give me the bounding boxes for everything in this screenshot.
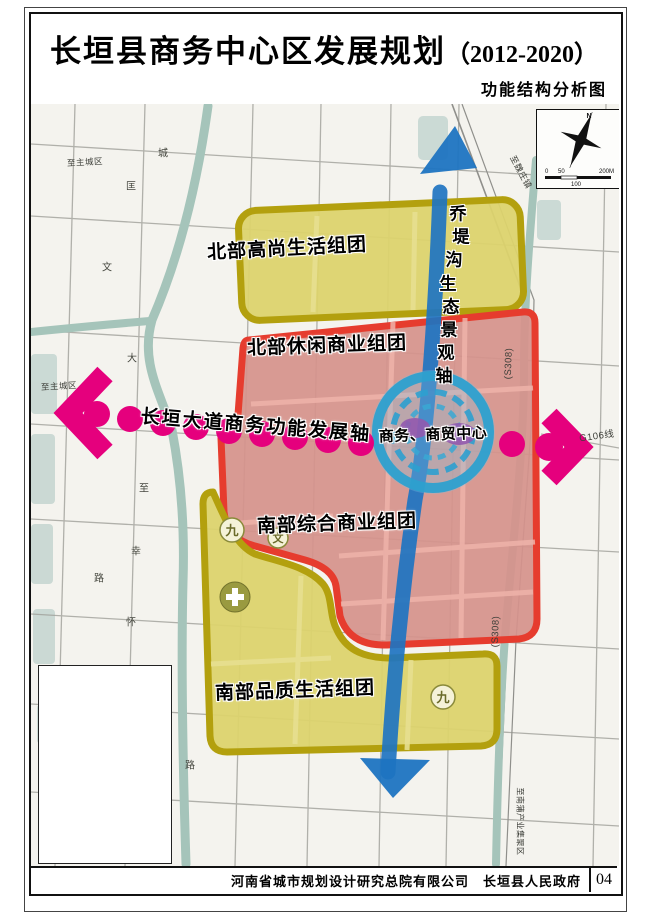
title-block: 长垣县商务中心区发展规划（2012-2020） 功能结构分析图: [31, 14, 617, 106]
compass-scale-box: N 0 50 100 200M: [536, 109, 619, 189]
school-symbol: 九: [224, 523, 238, 538]
road-label-industry-cluster: 至南蒲产业集聚区: [515, 788, 526, 856]
blank-inset-box: [38, 665, 172, 864]
eco-axis-char: 生: [440, 270, 457, 295]
north-compass-icon: [549, 110, 612, 176]
zone-label-south-living: 南部品质生活组团: [215, 673, 376, 706]
subtitle-text: 功能结构分析图: [481, 76, 607, 100]
eco-axis-char: 景: [441, 316, 458, 341]
zone-label-north-commercial: 北部休闲商业组团: [247, 328, 408, 361]
zone-label-business-center: 商务、商贸中心: [378, 422, 487, 447]
zone-label-south-commercial: 南部综合商业组团: [257, 506, 418, 539]
south-arrowhead: [360, 758, 430, 798]
road-char: 城: [158, 145, 168, 160]
road-label-to-city-2: 至主城区: [41, 379, 78, 393]
footer-government: 长垣县人民政府: [483, 871, 581, 890]
map-canvas: 九 文 九 N: [31, 104, 619, 866]
hospital-cross-icon: [220, 582, 250, 612]
plan-sheet: 长垣县商务中心区发展规划（2012-2020） 功能结构分析图: [0, 0, 650, 920]
scale-tick: 0: [545, 169, 549, 175]
page-number: 04: [589, 868, 617, 892]
title-years: （2012-2020）: [446, 42, 598, 68]
road-label-s308-2: (S308): [490, 616, 502, 648]
eco-axis-char: 乔: [450, 200, 467, 225]
road-char: 怀: [126, 614, 136, 629]
school-symbol: 九: [435, 690, 449, 705]
footer-company: 河南省城市规划设计研究总院有限公司: [231, 871, 469, 890]
footer-bar: 河南省城市规划设计研究总院有限公司 长垣县人民政府 04: [31, 866, 617, 892]
road-char: 至: [139, 480, 149, 495]
road-label-to-city-1: 至主城区: [67, 155, 104, 169]
road-char: 匡: [126, 178, 136, 193]
road-char: 路: [94, 570, 104, 585]
road-char: 大: [127, 350, 137, 365]
eco-axis-char: 态: [443, 293, 460, 318]
scale-tick: 50: [558, 169, 565, 175]
road-char: 幸: [131, 543, 141, 558]
eco-axis-char: 观: [438, 339, 455, 364]
scale-bar: 0 50 100 200M: [545, 169, 614, 188]
road-char: 路: [185, 757, 195, 772]
eco-axis-char: 轴: [436, 362, 453, 387]
road-label-s308-1: (S308): [503, 348, 515, 380]
title-text: 长垣县商务中心区发展规划: [50, 34, 446, 69]
eco-axis-char: 沟: [446, 246, 463, 271]
eco-axis-char: 堤: [453, 223, 470, 248]
scale-tick: 200M: [599, 169, 614, 175]
road-char: 文: [102, 259, 112, 274]
scale-tick: 100: [571, 182, 582, 188]
page-title: 长垣县商务中心区发展规划（2012-2020）: [31, 26, 617, 71]
north-label: N: [586, 113, 591, 120]
